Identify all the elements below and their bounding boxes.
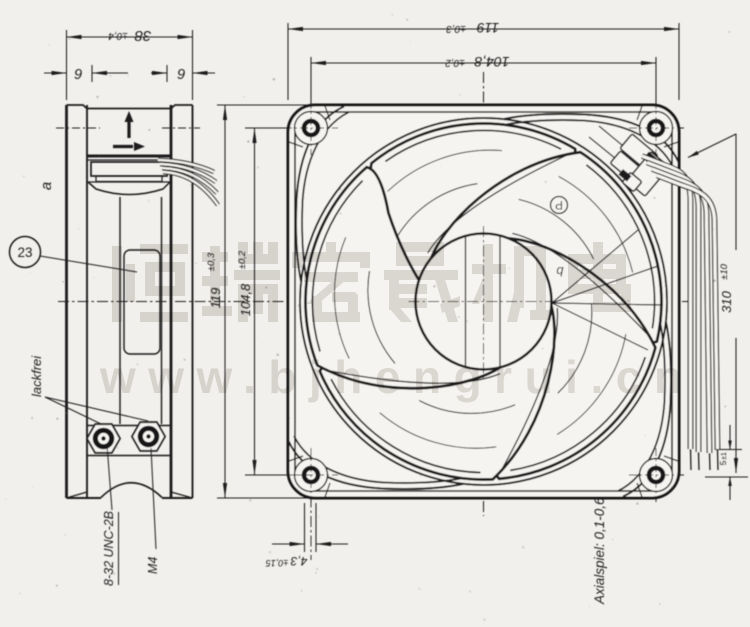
svg-text:a: a	[38, 182, 55, 190]
svg-text:Axialspiel: 0,1-0,6: Axialspiel: 0,1-0,6	[592, 497, 607, 605]
svg-text:310: 310	[719, 290, 734, 312]
svg-text:b: b	[556, 264, 563, 279]
svg-text:9: 9	[177, 67, 185, 83]
svg-text:5: 5	[718, 460, 728, 465]
svg-text:P: P	[555, 198, 563, 212]
svg-text:lackfrei: lackfrei	[29, 355, 44, 397]
svg-text:38: 38	[134, 27, 151, 44]
svg-text:104,8: 104,8	[474, 54, 509, 70]
svg-text:9: 9	[74, 67, 82, 83]
svg-text:±0,2: ±0,2	[445, 57, 465, 68]
svg-text:±1: ±1	[721, 452, 728, 460]
svg-text:±0,15: ±0,15	[265, 558, 288, 568]
svg-text:119: 119	[477, 20, 500, 36]
svg-text:±0,4: ±0,4	[108, 30, 128, 41]
svg-text:www.bjhengrui.cn: www.bjhengrui.cn	[99, 351, 694, 403]
svg-text:4,3: 4,3	[290, 554, 307, 568]
svg-text:±0,3: ±0,3	[446, 23, 466, 34]
svg-text:±10: ±10	[719, 263, 730, 279]
svg-text:M4: M4	[146, 557, 160, 574]
svg-text:23: 23	[17, 245, 32, 260]
